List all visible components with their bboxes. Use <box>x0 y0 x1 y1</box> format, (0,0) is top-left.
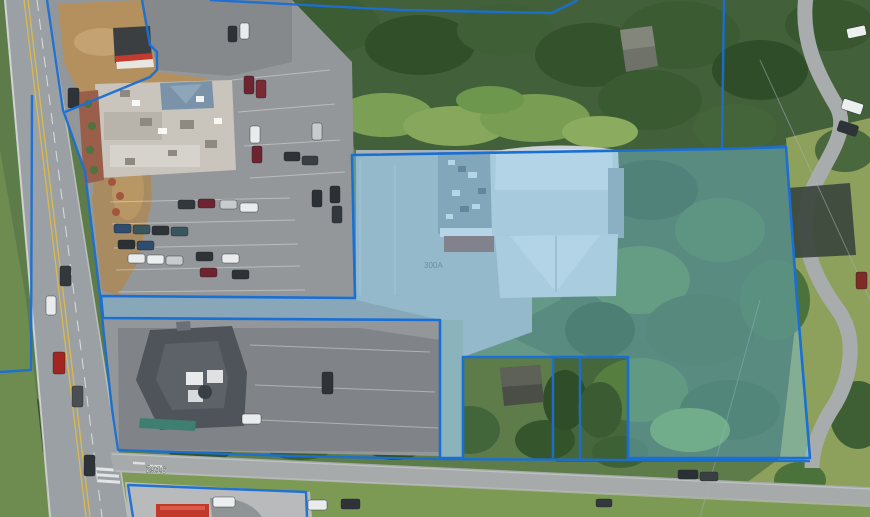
map-viewport: 300A 2916 <box>0 0 870 517</box>
restaurant-building <box>136 321 247 431</box>
house-in-woods <box>620 26 658 72</box>
aerial-map: 300A 2916 <box>0 0 870 517</box>
notch-house <box>500 365 544 406</box>
address-label: 2916 <box>146 464 167 475</box>
gravel-area <box>142 0 292 76</box>
